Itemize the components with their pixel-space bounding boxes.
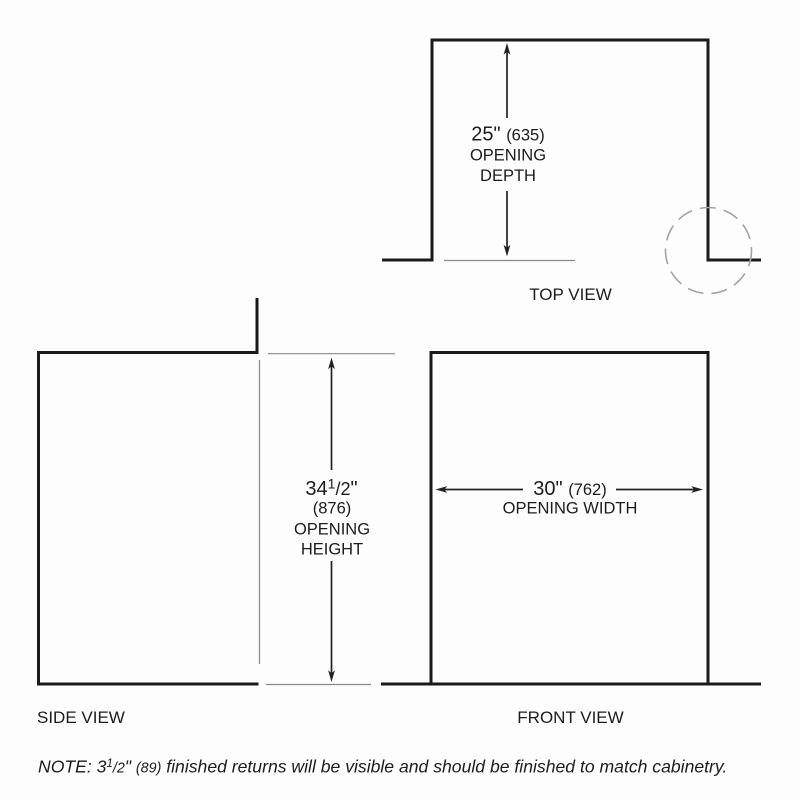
svg-text:OPENING WIDTH: OPENING WIDTH [503, 500, 638, 518]
svg-text:FRONT VIEW: FRONT VIEW [517, 708, 623, 727]
svg-text:HEIGHT: HEIGHT [301, 541, 363, 559]
svg-text:DEPTH: DEPTH [480, 167, 536, 185]
svg-text:OPENING: OPENING [470, 147, 546, 165]
svg-text:30" (762): 30" (762) [533, 478, 606, 500]
svg-text:25" (635): 25" (635) [471, 124, 544, 146]
svg-text:(876): (876) [313, 500, 352, 518]
svg-text:SIDE VIEW: SIDE VIEW [37, 708, 125, 727]
svg-text:OPENING: OPENING [294, 521, 370, 539]
svg-text:TOP VIEW: TOP VIEW [529, 285, 612, 304]
